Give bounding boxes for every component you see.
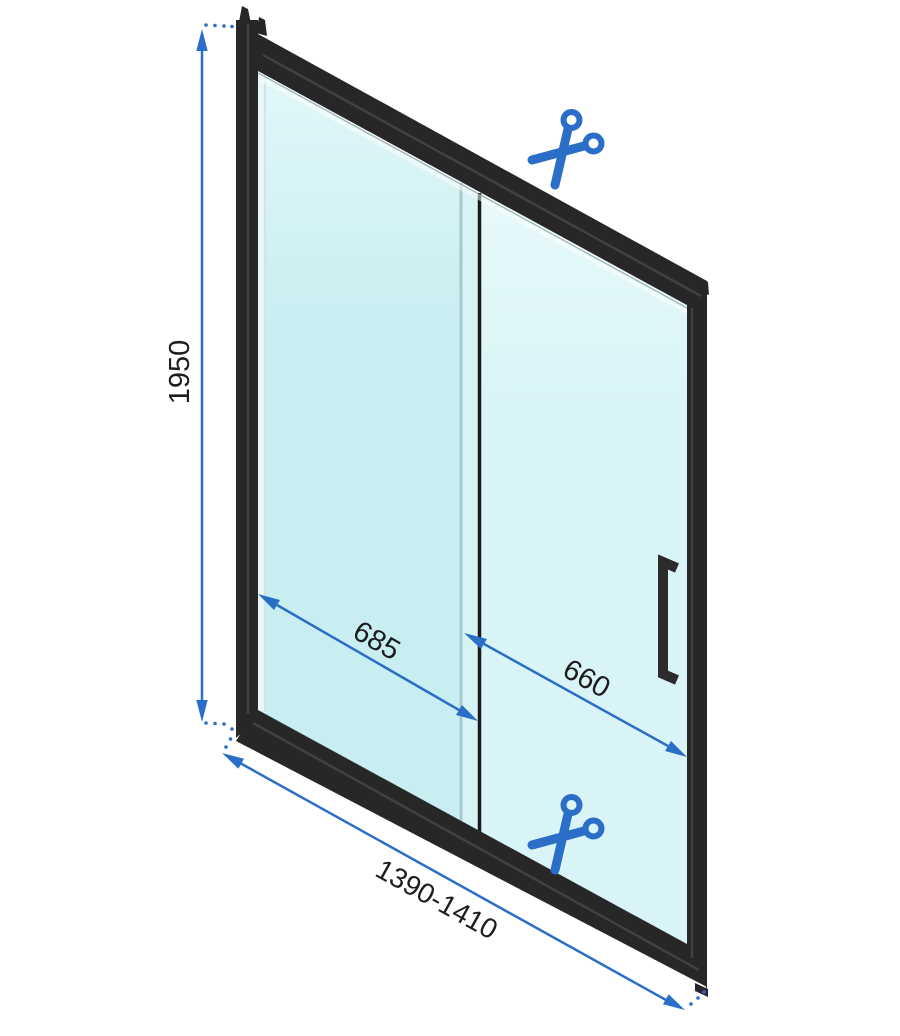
- dotted-connector-top: [204, 23, 234, 28]
- mount-tab-top-left-1: [239, 6, 251, 24]
- dotted-connector-bottom-right: [689, 990, 706, 1006]
- mount-tab-top-left-2: [256, 17, 267, 36]
- arrow-upleft-icon: [222, 753, 244, 769]
- shower-door-diagram: 1950 685 660 1390-1410: [0, 0, 900, 1036]
- glass-panels: [258, 71, 688, 947]
- panel-overlap-strip: [462, 184, 478, 833]
- dimension-height-label: 1950: [164, 340, 196, 405]
- arrow-up-icon: [196, 29, 207, 51]
- dimension-height: 1950: [164, 23, 234, 749]
- dotted-connector-bottom-left: [204, 721, 234, 749]
- glass-panel-back: [258, 72, 462, 824]
- frame-right-post: [687, 281, 707, 989]
- arrow-down-icon: [196, 700, 207, 722]
- scissors-icon-top: [532, 112, 602, 185]
- diagram-canvas: 1950 685 660 1390-1410: [0, 0, 900, 1036]
- arrow-downright-icon: [663, 994, 685, 1010]
